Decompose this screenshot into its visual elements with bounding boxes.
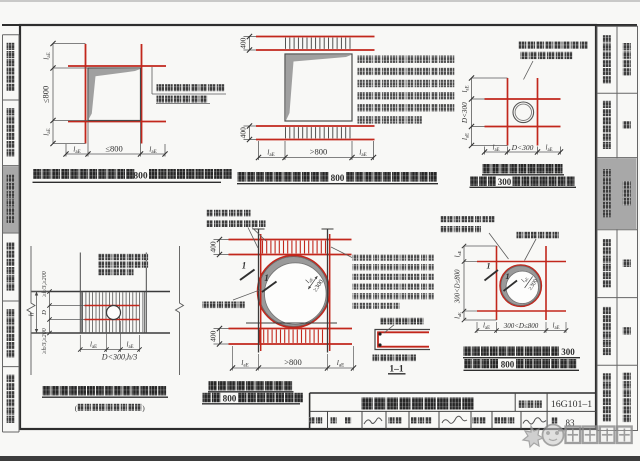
svg-text:300: 300	[561, 347, 575, 357]
svg-text:≥h/3,≥200: ≥h/3,≥200	[41, 270, 48, 296]
svg-text:400: 400	[209, 330, 218, 342]
svg-text:300<D≤800: 300<D≤800	[503, 322, 539, 330]
svg-text:1: 1	[505, 271, 509, 281]
svg-text:D<300,h/3: D<300,h/3	[101, 353, 137, 362]
svg-text:>800: >800	[284, 357, 302, 367]
svg-text:800: 800	[223, 393, 237, 403]
svg-text:800: 800	[133, 172, 148, 182]
svg-text:≤800: ≤800	[105, 144, 122, 154]
svg-text:800: 800	[331, 173, 345, 183]
svg-text:400: 400	[239, 127, 248, 139]
svg-text:300<D≤800: 300<D≤800	[455, 269, 462, 304]
svg-text:>800: >800	[310, 147, 328, 157]
svg-text:400: 400	[239, 37, 248, 49]
svg-text:1–1: 1–1	[389, 365, 404, 375]
svg-text:1: 1	[242, 261, 247, 271]
svg-text:1: 1	[264, 273, 269, 283]
svg-text:D<300: D<300	[511, 143, 534, 152]
svg-text:16G101–1: 16G101–1	[551, 399, 592, 410]
svg-text:≤800: ≤800	[41, 86, 51, 103]
svg-text:1: 1	[486, 261, 490, 271]
svg-text:800: 800	[501, 359, 515, 369]
svg-text:≥h/3,≥200: ≥h/3,≥200	[41, 327, 48, 353]
svg-text:D: D	[41, 310, 48, 316]
svg-text:400: 400	[209, 241, 218, 253]
svg-text:D<300: D<300	[461, 102, 469, 124]
svg-text:300: 300	[498, 177, 512, 187]
svg-text:h: h	[28, 312, 36, 316]
